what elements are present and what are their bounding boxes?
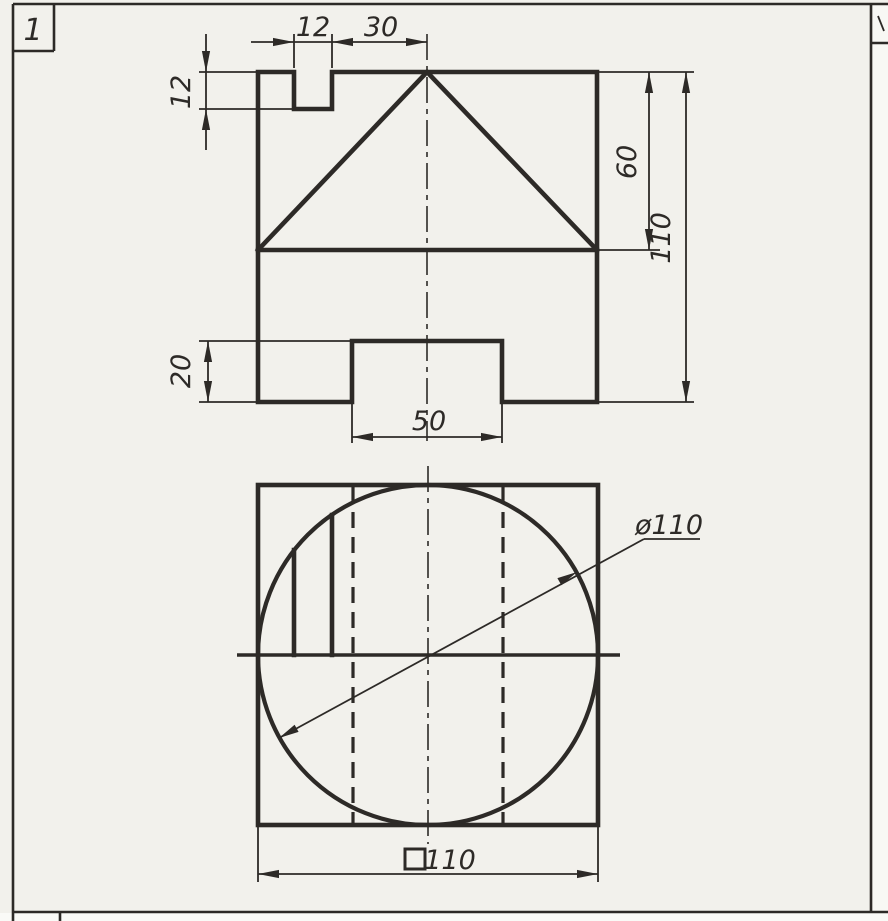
dim-text-slot-width: 50 — [412, 406, 446, 437]
dim-text-overall-height: 110 — [646, 212, 677, 264]
dim-text-notch-to-axis: 30 — [364, 12, 398, 43]
dim-text-cone-height: 60 — [612, 145, 643, 179]
right-margin — [873, 4, 888, 912]
bottom-margin — [0, 913, 888, 921]
dim-text-slot-depth: 20 — [166, 354, 197, 388]
dim-text-notch-depth: 12 — [166, 75, 197, 109]
technical-drawing: 1 12 30 12 — [0, 0, 888, 921]
dim-text-diameter: ø110 — [634, 510, 703, 541]
scanned-drawing-sheet: 1 12 30 12 — [0, 0, 888, 921]
paper-background — [0, 0, 888, 921]
dim-text-notch-width: 12 — [296, 12, 330, 43]
dim-text-square-size: 110 — [424, 845, 476, 876]
sheet-number: 1 — [23, 13, 42, 48]
